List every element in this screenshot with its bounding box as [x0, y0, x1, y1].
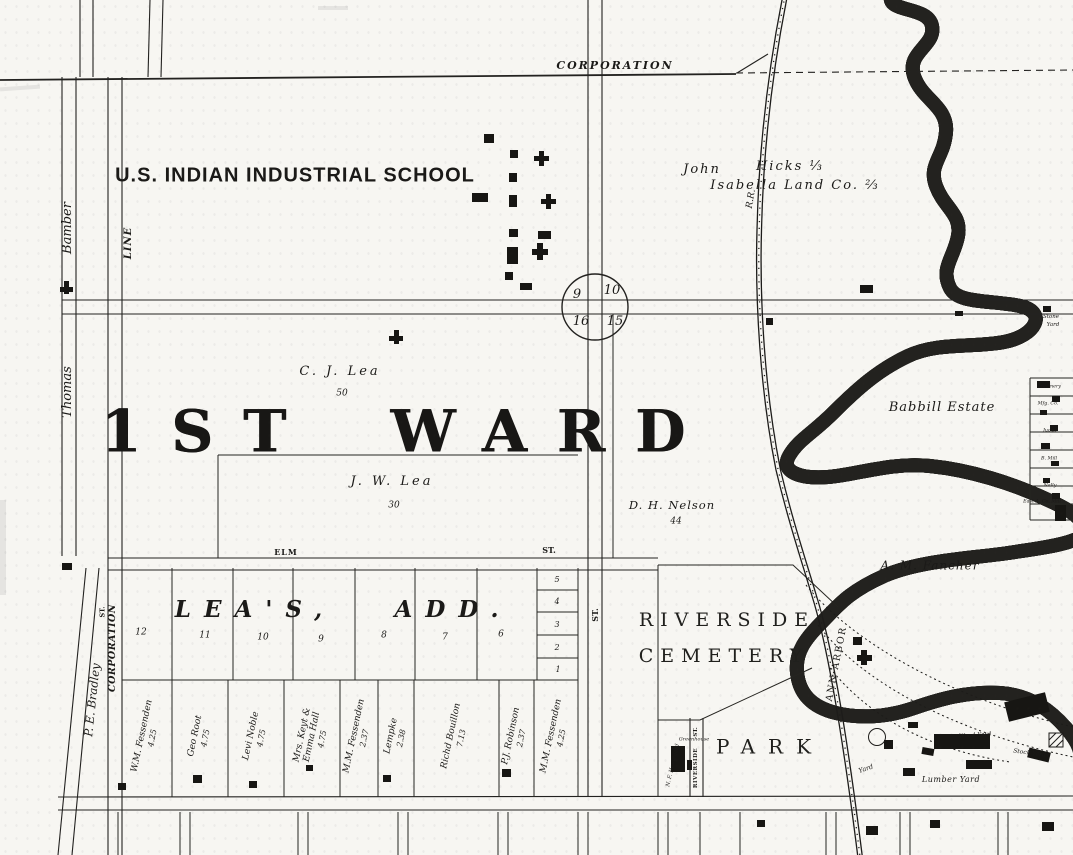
- owner-jw-lea: J. W. Lea: [351, 475, 434, 489]
- owner-hicks: Hicks ⅓: [756, 160, 824, 174]
- owner-babbill: Babbill Estate: [889, 401, 996, 415]
- owner-john: John: [683, 163, 721, 177]
- owner-jw-lea-acres: 30: [388, 501, 399, 510]
- lot-number: 9: [318, 635, 324, 644]
- hatched-building: [1049, 733, 1063, 747]
- lot-number: 10: [257, 633, 268, 642]
- street-thomas: Thomas: [61, 366, 75, 418]
- park-label: PARK: [716, 737, 824, 758]
- stone-yard-label-2: Yard: [1047, 323, 1060, 329]
- edge-site-label: Mfg. Co.: [1038, 401, 1059, 406]
- edge-site-label: East A. Co. Mill: [1023, 499, 1061, 504]
- edge-site-label: Creamery: [1037, 384, 1061, 389]
- lot-number: 3: [554, 621, 559, 629]
- lot-number: 8: [381, 631, 387, 640]
- cemetery-label-2: CEMETERY: [639, 647, 810, 667]
- cemetery-label-1: RIVERSIDE: [639, 611, 815, 631]
- turntable: [869, 729, 886, 746]
- lot-number: 11: [199, 631, 210, 640]
- lot-number: 12: [135, 628, 146, 637]
- owner-nelson: D. H. Nelson: [629, 499, 715, 511]
- edge-site-label: Nally: [1044, 483, 1057, 488]
- section-sw: 16: [573, 315, 590, 329]
- section-se: 15: [607, 315, 624, 329]
- street-riverside: RIVERSIDE: [694, 748, 700, 788]
- street-corporation-w: CORPORATION: [108, 604, 118, 692]
- school-label: U.S. INDIAN INDUSTRIAL SCHOOL: [115, 166, 475, 187]
- owner-cj-lea: C. J. Lea: [299, 365, 380, 379]
- stone-yard-label-1: Stone: [1043, 315, 1059, 321]
- plat-map: CORPORATION U.S. INDIAN INDUSTRIAL SCHOO…: [0, 0, 1073, 855]
- street-elm: ELM: [274, 548, 298, 556]
- corporation-top-label: CORPORATION: [556, 60, 673, 72]
- street-elm-st: ST.: [542, 546, 555, 554]
- owner-fancher: A. M. Fancher: [881, 560, 980, 573]
- edge-site-label: B. Mill: [1041, 456, 1057, 461]
- edge-site-label: Judge: [1043, 428, 1057, 433]
- lot-number: 4: [554, 598, 559, 606]
- addition-name-left: LEA'S,: [175, 598, 335, 622]
- street-bamber: Bamber: [61, 202, 75, 254]
- lot-number: 5: [554, 576, 559, 584]
- lumber-yard-label: Lumber Yard: [922, 776, 980, 784]
- lot-number: 6: [498, 630, 504, 639]
- ward-label: 1ST WARD: [101, 402, 716, 463]
- lot-number: 2: [554, 644, 559, 652]
- owner-nelson-acres: 44: [670, 517, 681, 526]
- section-nw: 9: [573, 288, 581, 302]
- lot-number: 1: [555, 666, 560, 674]
- street-riverside-st: ST.: [694, 727, 700, 736]
- greenhouse-label: Greenhouse: [679, 737, 710, 742]
- lot-number: 7: [442, 633, 448, 642]
- street-corporation-w-st: ST.: [100, 607, 107, 618]
- street-mid-st: ST.: [591, 608, 599, 621]
- owner-cj-lea-acres: 50: [336, 389, 347, 398]
- section-ne: 10: [604, 284, 621, 298]
- owner-isabella: Isabella Land Co. ⅔: [710, 179, 879, 193]
- addition-name-right: ADD.: [395, 598, 512, 622]
- street-line: LINE: [124, 227, 135, 259]
